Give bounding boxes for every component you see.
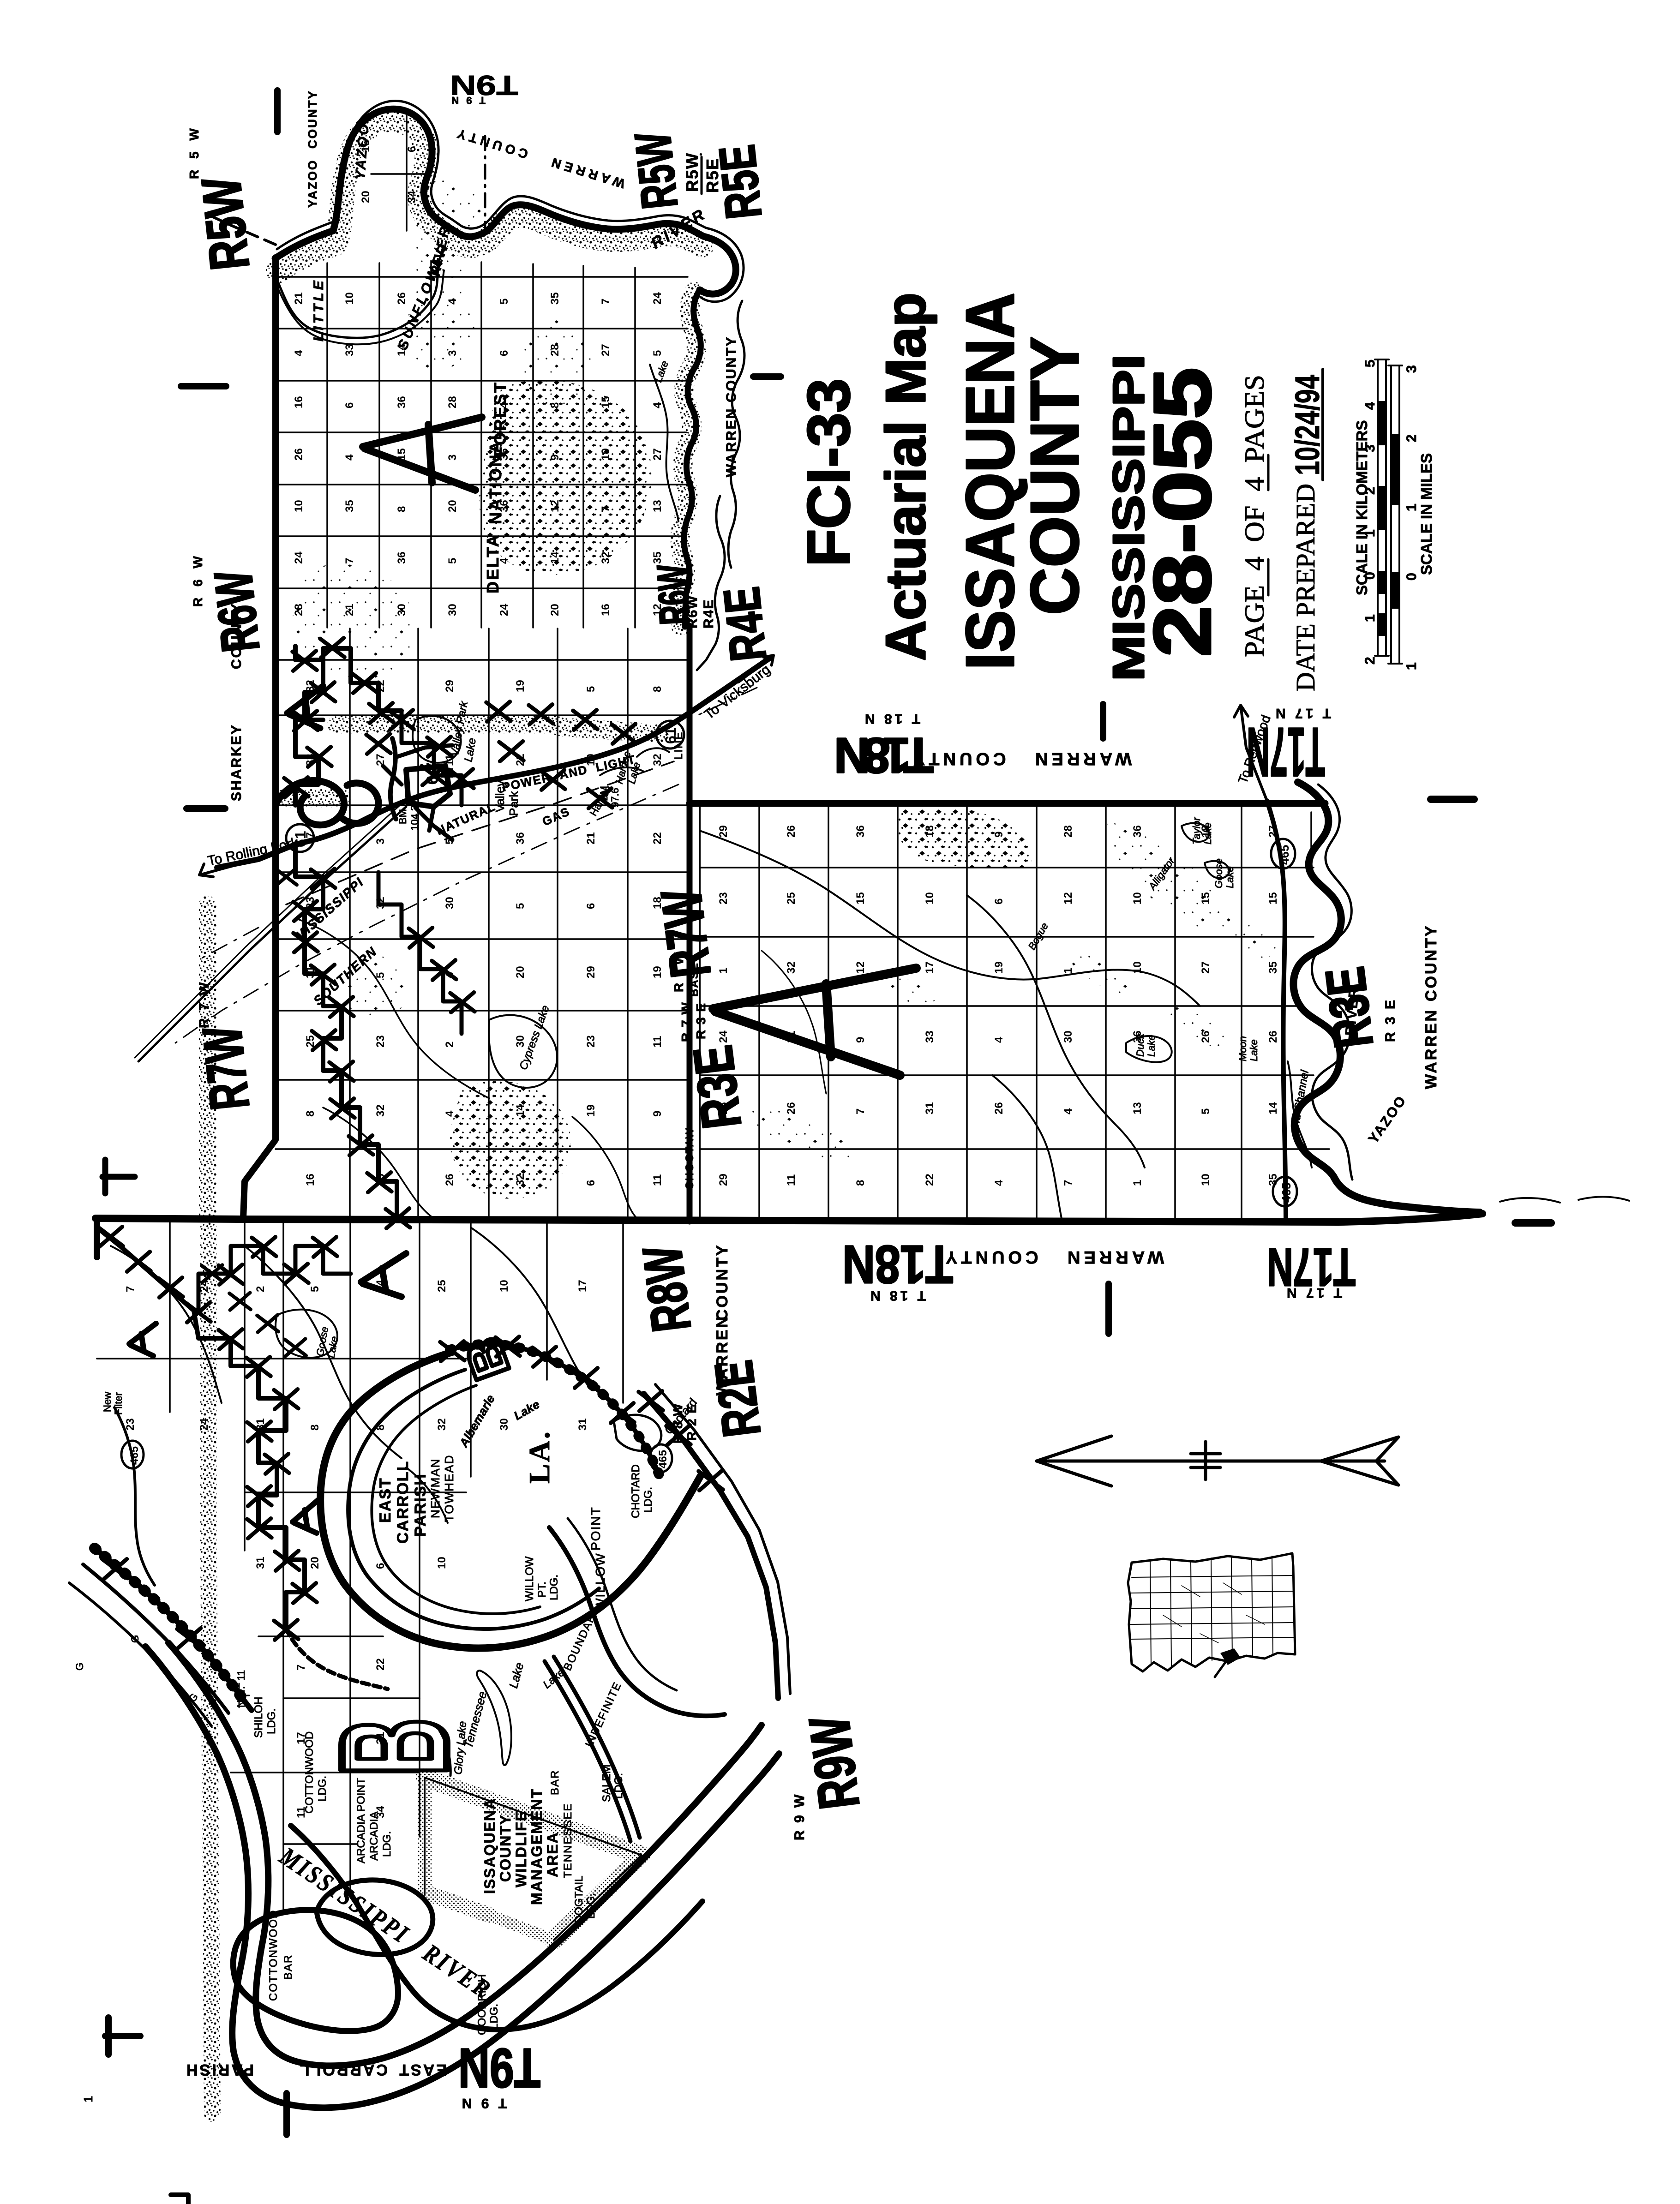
svg-text:31: 31 (254, 1557, 267, 1569)
svg-text:15: 15 (1200, 892, 1212, 904)
svg-text:6: 6 (343, 402, 356, 408)
svg-text:Lake: Lake (1146, 1035, 1157, 1057)
svg-text:26: 26 (444, 1174, 456, 1186)
svg-text:31: 31 (924, 1102, 936, 1114)
svg-text:36: 36 (1131, 1030, 1144, 1043)
svg-text:TOWHEAD: TOWHEAD (442, 1455, 456, 1522)
svg-text:R5W: R5W (624, 130, 689, 211)
svg-text:26: 26 (396, 292, 408, 305)
svg-text:R 5 W: R 5 W (187, 125, 201, 179)
svg-text:T17N: T17N (1247, 713, 1325, 791)
svg-text:5: 5 (1200, 1108, 1212, 1114)
svg-text:LDG.: LDG. (488, 2004, 500, 2030)
svg-text:7: 7 (124, 1286, 137, 1292)
svg-text:GOODRICH: GOODRICH (476, 1974, 488, 2035)
svg-text:6: 6 (993, 898, 1005, 904)
svg-text:27: 27 (374, 754, 387, 766)
svg-text:25: 25 (436, 1280, 448, 1292)
svg-text:10: 10 (924, 892, 936, 904)
svg-text:LA.: LA. (523, 1430, 556, 1484)
svg-text:R5E: R5E (708, 142, 773, 222)
svg-text:26: 26 (717, 1102, 730, 1114)
svg-text:4: 4 (651, 402, 664, 408)
svg-text:CARROLL: CARROLL (394, 1461, 412, 1544)
svg-text:20: 20 (309, 1557, 321, 1569)
svg-text:WILDLIFE: WILDLIFE (513, 1810, 529, 1887)
svg-text:5: 5 (444, 838, 456, 844)
svg-text:4: 4 (498, 402, 510, 408)
svg-text:R2E: R2E (703, 1357, 772, 1440)
svg-text:2: 2 (1362, 657, 1378, 665)
svg-text:NEWMAN: NEWMAN (428, 1458, 442, 1518)
svg-text:1: 1 (81, 2096, 95, 2102)
svg-text:4: 4 (444, 1110, 456, 1117)
svg-text:LDG.: LDG. (612, 1773, 625, 1799)
svg-text:19: 19 (585, 1104, 597, 1117)
svg-text:T 17 N: T 17 N (1284, 1285, 1342, 1300)
svg-text:8: 8 (396, 506, 408, 512)
svg-text:MANAGEMENT: MANAGEMENT (528, 1788, 545, 1905)
svg-text:7: 7 (600, 506, 612, 512)
svg-text:3: 3 (446, 350, 459, 356)
svg-text:7: 7 (1062, 1180, 1074, 1186)
svg-text:18: 18 (924, 825, 936, 838)
svg-text:14: 14 (549, 551, 561, 564)
svg-text:23: 23 (124, 1418, 137, 1431)
svg-text:465: 465 (1279, 1183, 1293, 1203)
svg-text:LDG.: LDG. (381, 1831, 393, 1857)
svg-text:35: 35 (651, 551, 664, 564)
svg-text:14: 14 (514, 1104, 527, 1117)
svg-text:30: 30 (446, 604, 459, 616)
svg-text:19: 19 (514, 680, 527, 692)
svg-text:6: 6 (406, 146, 418, 152)
svg-text:16: 16 (360, 140, 372, 152)
svg-text:27: 27 (600, 344, 612, 356)
svg-text:13: 13 (651, 500, 664, 512)
svg-text:LDG.: LDG. (548, 1575, 560, 1600)
svg-text:Filter: Filter (113, 1392, 124, 1415)
svg-text:R 6 W: R 6 W (191, 552, 205, 607)
svg-text:BM: BM (397, 809, 408, 824)
svg-text:9: 9 (993, 832, 1005, 838)
svg-text:25: 25 (785, 892, 798, 904)
svg-text:24: 24 (651, 292, 664, 305)
svg-text:1: 1 (1404, 662, 1419, 670)
svg-text:SHARKEY: SHARKEY (229, 724, 244, 801)
svg-text:17: 17 (295, 1732, 307, 1744)
svg-text:14: 14 (1267, 1102, 1279, 1114)
svg-text:8: 8 (651, 686, 664, 692)
svg-text:CHOCTAW: CHOCTAW (684, 1127, 696, 1190)
svg-text:G: G (74, 1663, 85, 1671)
svg-text:32: 32 (785, 961, 798, 974)
svg-text:18: 18 (1200, 825, 1212, 838)
svg-text:LDG.: LDG. (316, 1776, 329, 1802)
svg-text:COUNTY: COUNTY (229, 602, 244, 669)
svg-text:WARREN: WARREN (1422, 1008, 1440, 1089)
svg-text:32: 32 (436, 1418, 448, 1431)
svg-text:T 18 N: T 18 N (862, 711, 920, 726)
svg-text:7: 7 (295, 1665, 307, 1671)
svg-text:PARISH: PARISH (412, 1473, 429, 1537)
svg-text:5: 5 (374, 972, 387, 978)
svg-text:R 7 W: R 7 W (672, 952, 686, 992)
svg-text:10: 10 (1200, 1174, 1212, 1186)
svg-text:32: 32 (374, 1104, 387, 1117)
svg-text:3: 3 (446, 455, 459, 461)
svg-text:4: 4 (1362, 402, 1378, 410)
svg-text:POINT: POINT (588, 1506, 603, 1551)
svg-text:DOGTAIL: DOGTAIL (573, 1875, 585, 1923)
svg-text:FCI-33: FCI-33 (795, 378, 862, 567)
svg-text:17: 17 (924, 961, 936, 974)
svg-text:LDG.: LDG. (265, 1708, 278, 1734)
svg-text:30: 30 (1062, 1030, 1074, 1043)
svg-text:5: 5 (1362, 359, 1378, 367)
svg-text:T18N: T18N (842, 1234, 953, 1294)
svg-text:28: 28 (1062, 825, 1074, 838)
svg-text:28: 28 (446, 396, 459, 408)
svg-text:20: 20 (360, 191, 372, 203)
svg-text:SCALE IN MILES: SCALE IN MILES (1418, 453, 1435, 575)
svg-text:4: 4 (498, 557, 510, 564)
svg-text:22: 22 (374, 1658, 387, 1671)
svg-text:17: 17 (576, 1280, 589, 1292)
svg-text:23: 23 (374, 1035, 387, 1048)
svg-text:COUNTY: COUNTY (714, 1243, 731, 1321)
svg-text:COUNTY: COUNTY (724, 335, 739, 402)
svg-text:15: 15 (1267, 892, 1279, 904)
svg-text:18: 18 (651, 897, 664, 909)
svg-text:30: 30 (514, 1035, 527, 1048)
svg-text:6: 6 (585, 903, 597, 909)
svg-text:LINE: LINE (672, 731, 685, 760)
svg-text:2: 2 (444, 1042, 456, 1048)
svg-text:R5W: R5W (190, 174, 261, 273)
svg-text:31: 31 (374, 1732, 387, 1744)
svg-text:CARROLL: CARROLL (298, 2061, 388, 2078)
svg-text:ARCADIA POINT: ARCADIA POINT (355, 1778, 367, 1863)
svg-text:465: 465 (1278, 845, 1291, 865)
svg-text:R5W: R5W (683, 152, 702, 192)
svg-text:COUNTY: COUNTY (306, 90, 319, 149)
svg-text:11: 11 (785, 1174, 798, 1186)
svg-text:30: 30 (396, 604, 408, 616)
svg-text:LDG.: LDG. (642, 1487, 654, 1513)
svg-text:2: 2 (1404, 434, 1419, 442)
svg-text:YAZOO: YAZOO (306, 159, 319, 208)
svg-text:.: . (697, 154, 702, 155)
svg-text:EAST: EAST (397, 2061, 447, 2078)
svg-text:15: 15 (600, 396, 612, 408)
svg-text:1: 1 (1404, 503, 1419, 511)
svg-text:29: 29 (717, 825, 730, 838)
svg-text:6: 6 (374, 1563, 387, 1569)
svg-text:12: 12 (854, 961, 867, 974)
svg-text:R4E: R4E (713, 584, 777, 664)
svg-text:R6W: R6W (685, 595, 700, 629)
svg-text:14: 14 (374, 1280, 387, 1292)
svg-text:15: 15 (396, 448, 408, 461)
svg-text:465: 465 (657, 1450, 669, 1468)
svg-text:21: 21 (293, 292, 305, 305)
svg-text:26: 26 (785, 825, 798, 838)
svg-text:R 7 W: R 7 W (197, 981, 212, 1028)
svg-text:BAR: BAR (282, 1954, 294, 1980)
svg-text:NAT. 11: NAT. 11 (235, 1670, 247, 1707)
svg-text:20: 20 (514, 966, 527, 978)
svg-text:COTTONWOOD: COTTONWOOD (267, 1910, 280, 2001)
svg-text:T 9 N: T 9 N (459, 2096, 507, 2111)
svg-text:27: 27 (304, 832, 317, 844)
svg-text:SALEM: SALEM (600, 1765, 613, 1802)
svg-text:36: 36 (514, 832, 527, 844)
svg-text:10: 10 (1131, 892, 1144, 904)
svg-text:5: 5 (309, 1286, 321, 1292)
svg-text:EAST: EAST (377, 1477, 394, 1523)
svg-text:29: 29 (717, 1174, 730, 1186)
svg-text:10: 10 (498, 1280, 510, 1292)
svg-text:10: 10 (585, 754, 597, 766)
svg-text:9: 9 (651, 1111, 664, 1117)
svg-text:9: 9 (549, 455, 561, 461)
svg-text:8: 8 (309, 1425, 321, 1431)
svg-text:SHILOH: SHILOH (252, 1697, 265, 1738)
svg-text:R3E: R3E (682, 1042, 753, 1132)
svg-text:R9W: R9W (797, 1713, 871, 1812)
svg-text:16: 16 (293, 396, 305, 408)
svg-text:10/24/94: 10/24/94 (1288, 375, 1326, 475)
svg-text:8: 8 (549, 402, 561, 408)
svg-text:WILLOW: WILLOW (523, 1556, 536, 1601)
svg-text:10: 10 (293, 500, 305, 512)
svg-text:5: 5 (514, 903, 527, 909)
svg-text:R 9 W: R 9 W (792, 1793, 807, 1840)
svg-text:36: 36 (1131, 825, 1144, 838)
svg-text:R8W: R8W (631, 1243, 703, 1335)
svg-text:36: 36 (396, 396, 408, 408)
svg-text:COUNTY: COUNTY (1422, 924, 1440, 1001)
svg-text:6: 6 (498, 350, 510, 356)
svg-text:6: 6 (585, 1180, 597, 1186)
svg-text:3: 3 (374, 838, 387, 844)
svg-text:12: 12 (549, 500, 561, 512)
svg-text:5: 5 (585, 686, 597, 692)
svg-text:36: 36 (854, 825, 867, 838)
svg-text:31: 31 (576, 1418, 589, 1431)
svg-text:1: 1 (1062, 968, 1074, 974)
svg-text:10: 10 (436, 1557, 448, 1569)
svg-text:21: 21 (585, 832, 597, 844)
svg-text:26: 26 (993, 1102, 1005, 1114)
svg-text:29: 29 (585, 966, 597, 978)
svg-text:11: 11 (651, 1036, 664, 1048)
svg-text:27: 27 (1267, 825, 1279, 838)
svg-text:WARREN: WARREN (724, 407, 739, 477)
svg-text:13: 13 (1131, 1102, 1144, 1114)
svg-text:14: 14 (396, 344, 408, 356)
svg-text:26: 26 (293, 448, 305, 461)
svg-text:SCALE IN KILOMETERS: SCALE IN KILOMETERS (1353, 420, 1370, 595)
svg-text:8: 8 (304, 1111, 317, 1117)
svg-text:26: 26 (1200, 1030, 1212, 1043)
svg-text:36: 36 (396, 551, 408, 564)
svg-text:LDG.: LDG. (585, 1893, 597, 1919)
svg-text:104.2: 104.2 (409, 805, 420, 831)
svg-text:3: 3 (1404, 365, 1419, 373)
svg-text:Moon: Moon (1237, 1036, 1248, 1061)
svg-text:35: 35 (549, 292, 561, 305)
svg-text:5: 5 (498, 299, 510, 305)
svg-text:35: 35 (1267, 1174, 1279, 1186)
svg-text:G: G (129, 1635, 141, 1643)
svg-text:27: 27 (651, 448, 664, 461)
svg-text:465: 465 (128, 1446, 141, 1465)
svg-text:36: 36 (498, 500, 510, 512)
svg-text:Lake: Lake (1248, 1039, 1260, 1061)
svg-text:33: 33 (343, 344, 356, 356)
svg-text:COUNTY: COUNTY (1017, 336, 1093, 615)
svg-text:BAR: BAR (549, 1770, 561, 1795)
svg-text:11: 11 (651, 1174, 664, 1186)
svg-text:33: 33 (924, 1030, 936, 1043)
svg-text:PT.: PT. (536, 1581, 548, 1598)
svg-text:R3E: R3E (1314, 964, 1385, 1051)
svg-text:19: 19 (993, 961, 1005, 974)
svg-text:16: 16 (600, 604, 612, 616)
svg-text:8: 8 (374, 1425, 387, 1431)
svg-text:10: 10 (343, 292, 356, 305)
svg-text:32: 32 (514, 1174, 527, 1186)
svg-text:12: 12 (651, 604, 664, 616)
svg-text:10: 10 (1131, 961, 1144, 974)
svg-text:T 9 N: T 9 N (449, 95, 486, 106)
svg-text:22: 22 (924, 1174, 936, 1186)
svg-text:R7W: R7W (191, 1024, 261, 1113)
svg-text:R 3 E: R 3 E (694, 1002, 708, 1039)
svg-text:24: 24 (498, 604, 510, 616)
svg-text:22: 22 (651, 832, 664, 844)
svg-text:1: 1 (1362, 614, 1378, 622)
svg-text:PAGE 4 OF 4 PAGES: PAGE 4 OF 4 PAGES (1239, 375, 1270, 657)
svg-text:2: 2 (254, 1286, 267, 1292)
svg-text:PARISH: PARISH (185, 2061, 254, 2078)
svg-text:30: 30 (498, 1418, 510, 1431)
svg-text:30: 30 (444, 897, 456, 909)
svg-text:AREA: AREA (544, 1832, 561, 1877)
svg-text:1: 1 (1131, 1180, 1144, 1186)
svg-text:8: 8 (854, 1180, 867, 1186)
svg-text:28: 28 (293, 604, 305, 616)
svg-text:34: 34 (374, 1806, 387, 1818)
svg-text:32: 32 (600, 551, 612, 564)
svg-text:R 3 E: R 3 E (1383, 998, 1398, 1042)
svg-text:WARREN COUNTY: WARREN COUNTY (910, 749, 1132, 768)
svg-text:COUNTY: COUNTY (497, 1814, 514, 1882)
svg-text:WARREN COUNTY: WARREN COUNTY (942, 1247, 1164, 1267)
svg-text:5: 5 (651, 350, 664, 356)
svg-text:7: 7 (343, 558, 356, 564)
svg-text:BASE: BASE (688, 962, 701, 997)
svg-text:R 2 E: R 2 E (684, 1404, 699, 1441)
svg-text:29: 29 (444, 680, 456, 692)
svg-text:28: 28 (549, 344, 561, 356)
svg-text:16: 16 (304, 1174, 317, 1186)
svg-text:26: 26 (1267, 1030, 1279, 1043)
svg-text:R 7 W: R 7 W (679, 1001, 693, 1042)
svg-text:26: 26 (785, 1102, 798, 1114)
svg-text:28-055: 28-055 (1138, 367, 1228, 657)
svg-text:TENNESSEE: TENNESSEE (562, 1803, 574, 1878)
svg-text:9: 9 (854, 1037, 867, 1043)
svg-text:Park: Park (507, 791, 521, 816)
svg-text:T9N: T9N (458, 2037, 540, 2099)
svg-text:7: 7 (854, 1108, 867, 1114)
svg-text:24: 24 (293, 551, 305, 564)
svg-text:4: 4 (993, 1036, 1005, 1043)
svg-text:DATE PREPARED: DATE PREPARED (1290, 484, 1320, 691)
svg-text:27: 27 (1200, 961, 1212, 974)
svg-text:0: 0 (1404, 573, 1419, 581)
svg-text:5: 5 (446, 558, 459, 564)
svg-text:New: New (102, 1392, 113, 1412)
svg-text:7: 7 (600, 299, 612, 305)
svg-text:1: 1 (717, 968, 730, 974)
svg-text:24: 24 (717, 1030, 730, 1043)
svg-text:35: 35 (343, 500, 356, 512)
svg-text:19: 19 (651, 966, 664, 978)
svg-text:T 17 N: T 17 N (1273, 706, 1331, 721)
svg-text:4: 4 (446, 298, 459, 305)
svg-text:Actuarial Map: Actuarial Map (874, 293, 937, 661)
svg-text:21: 21 (785, 1030, 798, 1043)
svg-text:34: 34 (406, 191, 418, 203)
svg-text:T 18 N: T 18 N (868, 1288, 926, 1303)
svg-text:36: 36 (498, 448, 510, 461)
svg-text:WILLOW: WILLOW (593, 1552, 607, 1611)
svg-text:35: 35 (1267, 961, 1279, 974)
svg-text:23: 23 (717, 892, 730, 904)
svg-text:20: 20 (446, 500, 459, 512)
svg-text:4: 4 (343, 454, 356, 461)
svg-text:21: 21 (343, 604, 356, 616)
svg-text:ARCADIA: ARCADIA (368, 1811, 380, 1861)
svg-text:23: 23 (585, 1035, 597, 1048)
svg-text:ISSAQUENA: ISSAQUENA (481, 1798, 498, 1894)
svg-text:32: 32 (651, 754, 664, 766)
svg-text:32: 32 (374, 897, 387, 909)
svg-text:4: 4 (1062, 1108, 1074, 1114)
svg-text:CHOTARD: CHOTARD (630, 1464, 642, 1518)
svg-text:11: 11 (295, 1807, 307, 1818)
svg-text:4: 4 (993, 1180, 1005, 1186)
svg-text:15: 15 (854, 892, 867, 904)
svg-text:12: 12 (1062, 892, 1074, 904)
svg-text:4: 4 (293, 350, 305, 356)
svg-text:LITTLE: LITTLE (311, 278, 326, 341)
svg-text:19: 19 (600, 448, 612, 461)
svg-text:24: 24 (198, 1418, 210, 1431)
svg-text:20: 20 (549, 604, 561, 616)
